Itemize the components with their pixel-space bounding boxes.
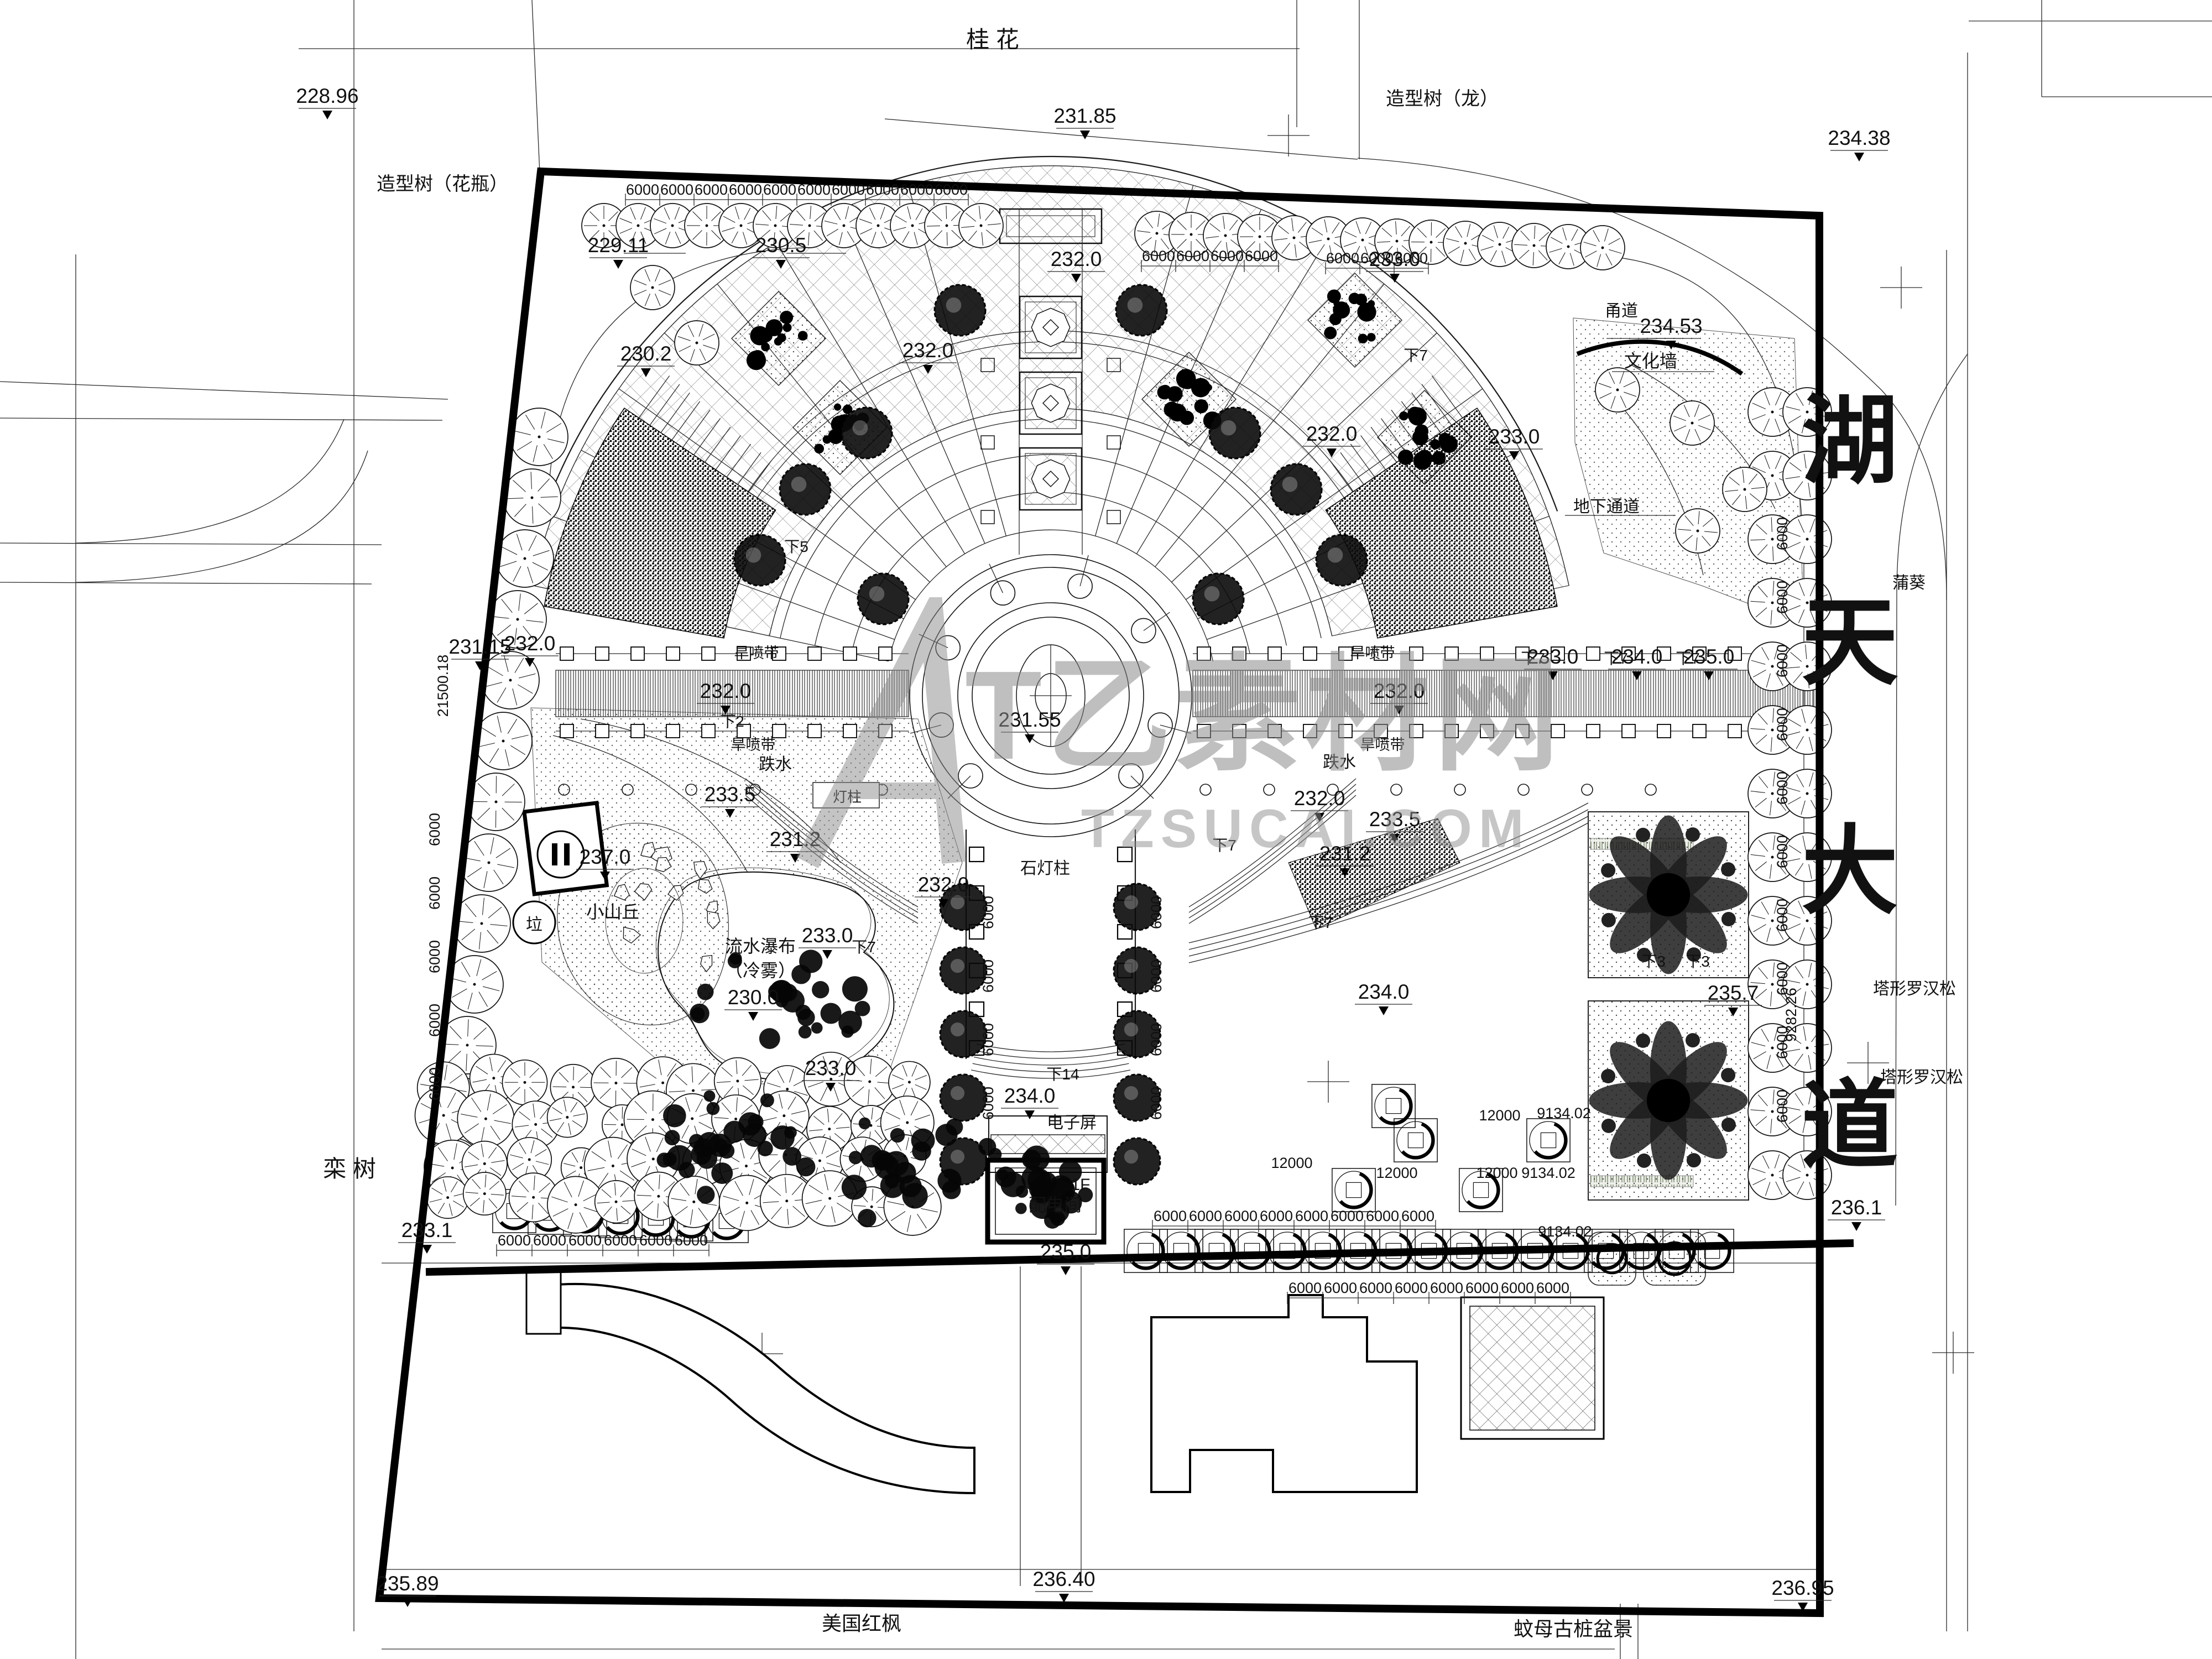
- circle: [843, 225, 846, 227]
- elevation-marker: [1025, 1110, 1035, 1119]
- shrub-mass: [760, 1093, 774, 1107]
- pergola-post: [843, 724, 857, 738]
- pergola-post: [1410, 647, 1423, 660]
- flower-dot: [1601, 863, 1615, 878]
- dim-label: 6000: [639, 1232, 672, 1249]
- pergola-post: [1551, 724, 1564, 738]
- dragon-motif: [834, 404, 841, 411]
- flower-dot: [1686, 827, 1700, 842]
- trellis-grid: [1470, 1306, 1595, 1430]
- dim-label: 6000: [1430, 1280, 1463, 1296]
- dim-label: 6000: [1148, 959, 1165, 993]
- circle: [808, 225, 811, 227]
- pergola-post: [666, 647, 680, 660]
- circle: [828, 1128, 831, 1130]
- dim-label: 6000: [980, 1087, 997, 1120]
- circle: [692, 1201, 695, 1203]
- circle: [495, 801, 498, 804]
- dim-label: 6000: [1148, 1023, 1165, 1056]
- dim-label: 6000: [426, 1004, 443, 1037]
- step-label: 下7: [1212, 837, 1237, 854]
- flower-dot: [1721, 862, 1735, 877]
- tree-square-planter: [1195, 1229, 1238, 1272]
- dim-label: 6000: [797, 181, 831, 198]
- dim-label: 6000: [1366, 1208, 1399, 1224]
- dim-label: 6000: [533, 1232, 566, 1249]
- elevation-label: 232.0: [1051, 248, 1102, 270]
- elevation-label: 230.2: [620, 342, 672, 365]
- dim-label: 6000: [1774, 581, 1791, 614]
- pergola-post: [631, 647, 644, 660]
- shrub-mass: [759, 1028, 780, 1049]
- circle: [946, 298, 962, 313]
- elevation-label: 233.5: [705, 783, 756, 806]
- tree-deciduous: [510, 408, 568, 466]
- road-line: [885, 119, 1358, 159]
- elevation-label: 236.40: [1032, 1568, 1095, 1590]
- survey-cross: [1880, 267, 1922, 309]
- elevation-label: 233.0: [802, 924, 853, 947]
- tree-deciduous: [675, 321, 719, 365]
- shrub-mass: [876, 1155, 891, 1170]
- elevation-label: 233.0: [1489, 425, 1540, 448]
- circle: [1204, 586, 1220, 602]
- rect: [1408, 1133, 1423, 1147]
- dragon-motif: [798, 331, 808, 341]
- shrub-mass: [842, 976, 868, 1001]
- step-label: 下5: [784, 538, 808, 555]
- circle: [696, 342, 698, 345]
- circle: [524, 557, 526, 560]
- pergola-post: [843, 647, 857, 660]
- flower-center: [1647, 873, 1690, 916]
- elevation-marker: [403, 1598, 413, 1607]
- circle: [1259, 236, 1261, 238]
- shrub-mass: [880, 1173, 905, 1198]
- dim-label: 6000: [1224, 1208, 1258, 1224]
- tree-deciduous: [1595, 368, 1640, 412]
- tree-deciduous: [474, 712, 532, 770]
- dragon-motif: [1398, 450, 1413, 465]
- shrub-mass: [703, 1090, 715, 1102]
- tree-deciduous: [630, 265, 675, 310]
- dragon-motif: [823, 435, 831, 444]
- step-label: 下7: [1604, 650, 1628, 667]
- dragon-motif: [1180, 410, 1194, 425]
- plant-label: 美国红枫: [822, 1612, 901, 1635]
- shrub-mass: [978, 1138, 996, 1156]
- circle: [734, 1118, 737, 1120]
- elevation-label: 234.0: [1004, 1084, 1056, 1107]
- dim-label: 6000: [1774, 708, 1791, 741]
- elevation-label: 234.38: [1828, 127, 1890, 149]
- elevation-label: 234.0: [1358, 980, 1410, 1003]
- circle: [1430, 241, 1433, 244]
- dim-label: 6000: [980, 896, 997, 929]
- circle: [446, 1196, 449, 1199]
- pergola-post: [702, 647, 715, 660]
- elevation-label: 231.15: [448, 635, 511, 658]
- flower-dot: [1721, 1118, 1736, 1132]
- circle: [492, 1077, 495, 1079]
- pergola-post: [1303, 647, 1317, 660]
- dim-label: 12000: [1376, 1165, 1417, 1181]
- shrub-mass: [796, 1157, 815, 1176]
- elevation-label: 233.0: [1369, 248, 1421, 270]
- circle: [746, 547, 761, 563]
- elevation-label: 232.0: [918, 873, 969, 896]
- circle: [1124, 959, 1138, 973]
- circle: [1328, 547, 1343, 563]
- tree-square-planter: [1124, 1229, 1167, 1272]
- shrub-mass: [707, 1102, 720, 1115]
- dim-label: 6000: [1331, 1208, 1364, 1224]
- dragon-motif: [1179, 372, 1196, 389]
- road-line: [0, 382, 448, 399]
- bollard: [1454, 784, 1465, 795]
- circle: [1771, 602, 1774, 604]
- shrub-mass: [858, 1209, 876, 1227]
- dim-label: 6000: [1774, 517, 1791, 550]
- feature-label: 1F: [1071, 1176, 1090, 1194]
- circle: [1771, 856, 1774, 859]
- fan-arc: [852, 492, 1250, 654]
- dim-label: 6000: [695, 181, 728, 198]
- dim-label: 6000: [1774, 1089, 1791, 1123]
- elevation-label: 231.2: [1319, 842, 1371, 865]
- feature-label: 流水瀑布: [725, 936, 796, 956]
- circle: [532, 1196, 535, 1199]
- tree-deciduous: [547, 1097, 587, 1137]
- dim-label: 6000: [426, 940, 443, 973]
- shrub-mass: [691, 1144, 711, 1165]
- circle: [1771, 474, 1774, 477]
- circle: [774, 225, 777, 227]
- tree-deciduous: [457, 1091, 514, 1147]
- dim-label: 6000: [1148, 1087, 1165, 1120]
- tree-deciduous: [502, 1060, 547, 1105]
- pergola-post: [1587, 647, 1600, 660]
- circle: [1124, 1022, 1138, 1036]
- circle: [734, 535, 785, 586]
- path: [1340, 1174, 1371, 1208]
- rect: [1230, 1229, 1274, 1272]
- dragon-motif: [777, 333, 786, 342]
- circle: [1128, 298, 1143, 313]
- dim-label: 6000: [1326, 250, 1359, 267]
- pergola-post: [702, 724, 715, 738]
- axis-fountain-octagon: [1031, 384, 1070, 422]
- circle: [1282, 477, 1298, 492]
- pergola-post: [1197, 724, 1211, 738]
- circle: [1209, 408, 1260, 458]
- path: [946, 206, 947, 219]
- circle: [980, 225, 983, 227]
- feature-label: 灯柱: [833, 789, 862, 805]
- tree-conifer-dark: [1209, 408, 1260, 458]
- dragon-motif: [780, 311, 793, 324]
- bollard: [1391, 784, 1402, 795]
- feature-label: 旱喷带: [1350, 645, 1395, 661]
- circle: [1156, 232, 1159, 235]
- dragon-motif: [1440, 435, 1458, 453]
- dim-label: 6000: [660, 181, 693, 198]
- plant-label: 造型树（花瓶）: [377, 174, 508, 195]
- pergola-post: [666, 724, 680, 738]
- pergola-post: [631, 724, 644, 738]
- dim-label: 6000: [426, 1067, 443, 1100]
- circle: [951, 1086, 964, 1100]
- feature-label: 旱喷带: [1360, 737, 1405, 753]
- rect: [1124, 1229, 1167, 1272]
- circle: [853, 420, 868, 436]
- tree-deciduous: [1670, 401, 1714, 445]
- elevation-marker: [322, 111, 332, 119]
- step-label: 下7: [1521, 650, 1545, 667]
- circle: [509, 679, 512, 682]
- circle: [858, 573, 909, 624]
- shrub-mass: [666, 1145, 692, 1171]
- circle: [818, 1160, 821, 1162]
- axis-pool-inner: [1006, 216, 1095, 237]
- dragon-motif: [1324, 327, 1337, 340]
- plant-label: 蚊母古桩盆景: [1514, 1618, 1633, 1640]
- circle: [637, 225, 640, 227]
- circle: [868, 1080, 871, 1083]
- dim-label: 6000: [1324, 1280, 1357, 1296]
- elevation-label: 232.0: [902, 339, 954, 362]
- circle: [1327, 238, 1330, 241]
- circle: [692, 1089, 695, 1092]
- axis-planter: [981, 510, 994, 524]
- shrub-mass: [911, 1129, 935, 1152]
- rect: [1160, 1229, 1203, 1272]
- circle: [572, 1086, 575, 1088]
- circle: [1271, 464, 1322, 515]
- dragon-motif: [1194, 399, 1208, 413]
- road-name-char: 道: [1802, 1073, 1898, 1180]
- axis-planter: [1107, 436, 1120, 449]
- pergola-post: [1233, 724, 1246, 738]
- feature-label: 文化墙: [1624, 351, 1677, 371]
- tree-square-planter: [1527, 1119, 1570, 1162]
- flower-dot: [1636, 1034, 1650, 1048]
- feature-label: 配电间: [1029, 1195, 1082, 1215]
- flower-dot: [1721, 1068, 1735, 1082]
- step-label: 下14: [1046, 1066, 1079, 1083]
- plant-label: 桂 花: [966, 27, 1019, 53]
- elevation-label: 235.7: [1708, 982, 1759, 1004]
- pergola-post: [596, 647, 609, 660]
- circle: [740, 225, 743, 227]
- curved-building: [545, 1284, 974, 1493]
- circle: [671, 225, 674, 227]
- circle: [1601, 247, 1604, 249]
- elevation-label: 233.1: [401, 1219, 453, 1241]
- circle: [1361, 239, 1364, 242]
- dim-label: 6000: [426, 813, 443, 846]
- circle: [1697, 530, 1699, 533]
- dragon-motif: [747, 351, 766, 370]
- circle: [657, 1195, 660, 1198]
- dim-label: 6000: [729, 181, 762, 198]
- circle: [877, 225, 880, 227]
- circle: [528, 1158, 531, 1161]
- circle: [1533, 244, 1536, 247]
- circle: [870, 1206, 873, 1208]
- circle: [1771, 1047, 1774, 1050]
- dim-label: 6000: [1245, 248, 1278, 264]
- circle: [1691, 422, 1694, 425]
- tree-conifer-dark: [1271, 464, 1322, 515]
- plant-label: 栾 树: [323, 1156, 376, 1182]
- pergola-post: [596, 724, 609, 738]
- elevation-label: 234.53: [1640, 315, 1702, 337]
- pergola-post: [879, 724, 892, 738]
- dim-label: 6000: [1295, 1208, 1328, 1224]
- circle: [1567, 246, 1570, 248]
- pergola-canopy: [1193, 670, 1814, 717]
- dim-label: 6000: [1774, 644, 1791, 677]
- fountain-cross: [1030, 645, 1072, 747]
- dragon-motif: [1367, 333, 1375, 341]
- dragon-motif: [832, 419, 842, 429]
- tree-conifer-dark: [1114, 1138, 1160, 1185]
- elevation-label: 235.0: [1040, 1240, 1092, 1263]
- shrub-mass: [797, 1009, 815, 1026]
- circle: [621, 1123, 624, 1126]
- road-line: [532, 0, 540, 173]
- pergola-post: [773, 724, 786, 738]
- dim-label: 21500.18: [435, 655, 451, 717]
- circle: [1771, 983, 1774, 986]
- circle: [566, 1116, 568, 1119]
- pergola-post: [1516, 724, 1529, 738]
- dim-label: 6000: [1211, 248, 1244, 264]
- road-line: [0, 582, 372, 584]
- pergola-post: [1374, 724, 1387, 738]
- feature-label: 垃: [526, 916, 542, 934]
- dragon-motif: [1432, 451, 1446, 465]
- circle: [935, 285, 985, 336]
- circle: [531, 497, 534, 499]
- circle: [1221, 420, 1237, 436]
- dim-label: 6000: [1774, 899, 1791, 932]
- circle: [1771, 920, 1774, 922]
- dim-label: 6000: [1536, 1280, 1569, 1296]
- circle: [1114, 1138, 1160, 1185]
- dim-label: 6000: [1401, 1208, 1434, 1224]
- tree-deciduous: [668, 1176, 719, 1228]
- pergola-post: [1268, 647, 1281, 660]
- elevation-label: 235.89: [376, 1572, 439, 1595]
- circle: [908, 1081, 911, 1083]
- dim-label: 6000: [1774, 771, 1791, 805]
- pergola-post: [808, 724, 821, 738]
- tree-conifer-dark: [935, 285, 985, 336]
- dim-label: 6000: [935, 181, 968, 198]
- road-curve: [76, 419, 344, 543]
- shrub-mass: [663, 1104, 686, 1128]
- circle: [612, 1165, 614, 1167]
- tree-square-planter: [1394, 1119, 1437, 1162]
- feature-label: 跌水: [759, 755, 792, 774]
- toilet-icon-figure: [552, 843, 557, 865]
- circle: [1744, 488, 1746, 491]
- dim-label: 6000: [1176, 248, 1209, 264]
- circle: [951, 959, 964, 973]
- rect: [1541, 1133, 1556, 1147]
- circle: [791, 477, 807, 492]
- tree-deciduous: [463, 1172, 506, 1215]
- dim-label: 6000: [426, 877, 443, 910]
- shrub-mass: [942, 1181, 961, 1199]
- circle: [483, 1192, 486, 1195]
- tree-conifer-dark: [780, 464, 831, 515]
- path: [1535, 1124, 1566, 1158]
- tree-deciduous: [1580, 226, 1625, 270]
- circle: [652, 1157, 655, 1160]
- tree-square-planter: [1332, 1168, 1375, 1212]
- circle: [1124, 895, 1138, 909]
- elevation-marker: [1379, 1006, 1389, 1015]
- shrub-mass: [799, 950, 822, 973]
- step-label: 下2: [720, 713, 744, 730]
- feature-label: （冷雾）: [725, 961, 796, 980]
- survey-cross: [1307, 1061, 1349, 1103]
- tree-deciduous: [496, 530, 554, 587]
- dim-label: 12000: [1271, 1155, 1312, 1171]
- axis-planter: [981, 436, 994, 449]
- bollard: [1582, 784, 1593, 795]
- dark-slope-patch: [1288, 818, 1460, 929]
- flower-dot: [1601, 1119, 1616, 1133]
- circle: [615, 1201, 618, 1203]
- circle: [745, 1165, 748, 1167]
- circle: [906, 1121, 909, 1124]
- elevation-label: 231.85: [1053, 105, 1116, 127]
- circle: [1224, 234, 1227, 237]
- circle: [785, 1199, 788, 1202]
- circle: [1396, 240, 1399, 243]
- bollard: [1518, 784, 1529, 795]
- rect: [1372, 1084, 1415, 1128]
- elevation-label: 237.0: [580, 846, 631, 868]
- shrub-mass: [691, 1007, 705, 1021]
- dragon-motif: [814, 444, 824, 453]
- grand-stair-step: [977, 1044, 1125, 1052]
- dragon-motif: [1157, 385, 1172, 399]
- survey-cross: [1267, 114, 1310, 156]
- dragon-motif: [1333, 300, 1340, 307]
- path: [927, 226, 940, 226]
- circle: [524, 1081, 526, 1084]
- circle: [466, 1044, 469, 1047]
- dim-label: 6000: [1142, 248, 1175, 264]
- curved-building-wing: [526, 1272, 561, 1334]
- elevation-marker: [1025, 734, 1035, 743]
- shrub-mass: [812, 981, 829, 998]
- circle: [1499, 243, 1501, 246]
- road-line: [0, 543, 382, 545]
- flower-dot: [1687, 1153, 1701, 1167]
- tree-deciduous: [959, 204, 1003, 248]
- pergola-post: [879, 647, 892, 660]
- circle: [911, 225, 914, 227]
- dragon-motif: [1357, 302, 1376, 321]
- pergola-post: [1303, 724, 1317, 738]
- stone-lantern-post: [1118, 847, 1132, 862]
